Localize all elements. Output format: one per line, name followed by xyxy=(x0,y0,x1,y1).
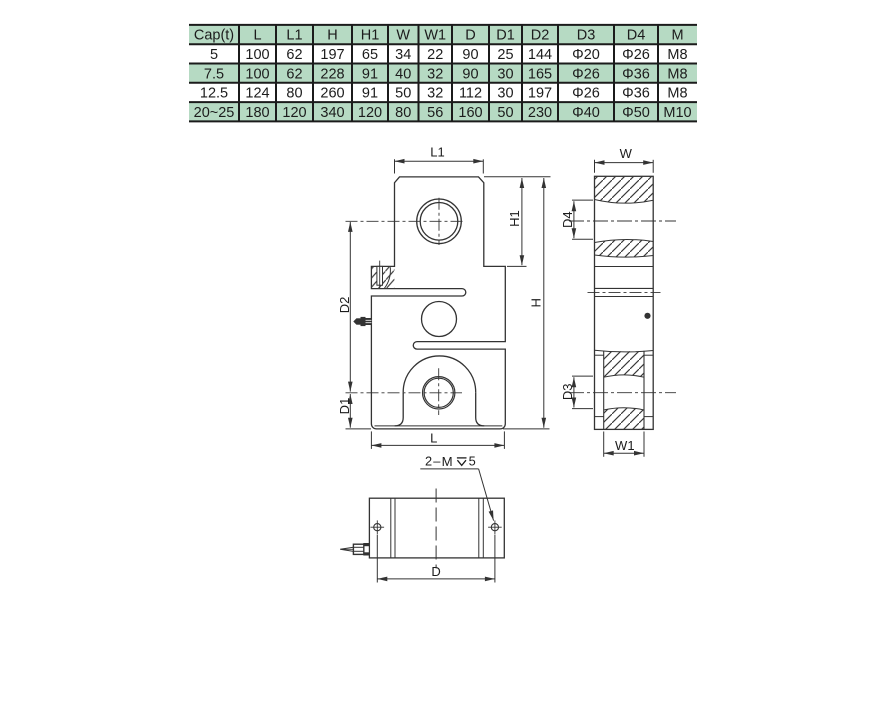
svg-text:M10: M10 xyxy=(663,105,691,121)
svg-text:D3: D3 xyxy=(577,28,596,44)
svg-text:D2: D2 xyxy=(531,28,550,44)
svg-text:32: 32 xyxy=(427,86,443,102)
svg-text:2: 2 xyxy=(425,454,432,469)
svg-text:100: 100 xyxy=(245,66,269,82)
svg-text:Φ26: Φ26 xyxy=(622,47,650,63)
svg-text:12.5: 12.5 xyxy=(200,86,228,102)
svg-text:H: H xyxy=(327,28,337,44)
svg-text:H: H xyxy=(529,298,544,307)
svg-text:22: 22 xyxy=(427,47,443,63)
svg-text:H1: H1 xyxy=(361,28,380,44)
svg-text:40: 40 xyxy=(395,66,411,82)
svg-text:M8: M8 xyxy=(667,66,687,82)
svg-text:–: – xyxy=(433,454,441,469)
svg-text:Φ50: Φ50 xyxy=(622,105,650,121)
svg-text:W1: W1 xyxy=(615,438,635,453)
svg-text:260: 260 xyxy=(320,86,344,102)
svg-text:Φ36: Φ36 xyxy=(622,66,650,82)
svg-text:65: 65 xyxy=(362,47,378,63)
svg-text:D: D xyxy=(465,28,475,44)
svg-text:5: 5 xyxy=(469,454,476,469)
svg-text:L: L xyxy=(430,430,437,445)
svg-text:L1: L1 xyxy=(286,28,302,44)
svg-text:230: 230 xyxy=(528,105,552,121)
svg-text:D4: D4 xyxy=(627,28,646,44)
svg-text:M8: M8 xyxy=(667,86,687,102)
svg-text:D4: D4 xyxy=(560,211,575,228)
svg-text:H1: H1 xyxy=(507,210,522,227)
svg-text:90: 90 xyxy=(462,47,478,63)
svg-text:80: 80 xyxy=(286,86,302,102)
svg-text:100: 100 xyxy=(245,47,269,63)
svg-text:D1: D1 xyxy=(337,398,352,415)
svg-text:112: 112 xyxy=(459,86,482,102)
svg-text:5: 5 xyxy=(210,47,218,63)
svg-text:Φ20: Φ20 xyxy=(572,47,600,63)
svg-text:228: 228 xyxy=(320,66,344,82)
svg-text:34: 34 xyxy=(395,47,411,63)
svg-text:90: 90 xyxy=(462,66,478,82)
svg-text:120: 120 xyxy=(282,105,306,121)
svg-text:20~25: 20~25 xyxy=(194,105,235,121)
svg-text:Φ26: Φ26 xyxy=(572,86,600,102)
svg-text:62: 62 xyxy=(286,66,302,82)
svg-text:62: 62 xyxy=(286,47,302,63)
svg-text:165: 165 xyxy=(528,66,552,82)
svg-text:56: 56 xyxy=(427,105,443,121)
svg-text:50: 50 xyxy=(395,86,411,102)
svg-text:7.5: 7.5 xyxy=(204,66,224,82)
svg-text:M: M xyxy=(442,454,453,469)
svg-text:L1: L1 xyxy=(430,144,444,159)
svg-text:91: 91 xyxy=(362,86,378,102)
svg-text:80: 80 xyxy=(395,105,411,121)
svg-text:W: W xyxy=(396,28,410,44)
svg-text:W1: W1 xyxy=(424,28,446,44)
svg-text:30: 30 xyxy=(497,86,513,102)
svg-text:D: D xyxy=(431,564,440,579)
svg-text:D1: D1 xyxy=(496,28,515,44)
svg-text:D3: D3 xyxy=(560,383,575,400)
svg-text:180: 180 xyxy=(245,105,269,121)
svg-text:25: 25 xyxy=(497,47,513,63)
svg-text:197: 197 xyxy=(320,47,344,63)
svg-text:30: 30 xyxy=(497,66,513,82)
svg-text:144: 144 xyxy=(528,47,552,63)
svg-text:M: M xyxy=(671,28,683,44)
svg-text:160: 160 xyxy=(458,105,482,121)
svg-text:Φ40: Φ40 xyxy=(572,105,600,121)
svg-text:32: 32 xyxy=(427,66,443,82)
svg-text:L: L xyxy=(253,28,261,44)
svg-text:120: 120 xyxy=(358,105,382,121)
svg-text:Cap(t): Cap(t) xyxy=(194,28,234,44)
svg-text:91: 91 xyxy=(362,66,378,82)
svg-text:D2: D2 xyxy=(337,297,352,314)
svg-text:340: 340 xyxy=(320,105,344,121)
svg-text:197: 197 xyxy=(528,86,552,102)
svg-text:M8: M8 xyxy=(667,47,687,63)
svg-text:Φ36: Φ36 xyxy=(622,86,650,102)
svg-text:50: 50 xyxy=(497,105,513,121)
svg-text:124: 124 xyxy=(245,86,269,102)
svg-text:Φ26: Φ26 xyxy=(572,66,600,82)
svg-text:W: W xyxy=(620,146,633,161)
